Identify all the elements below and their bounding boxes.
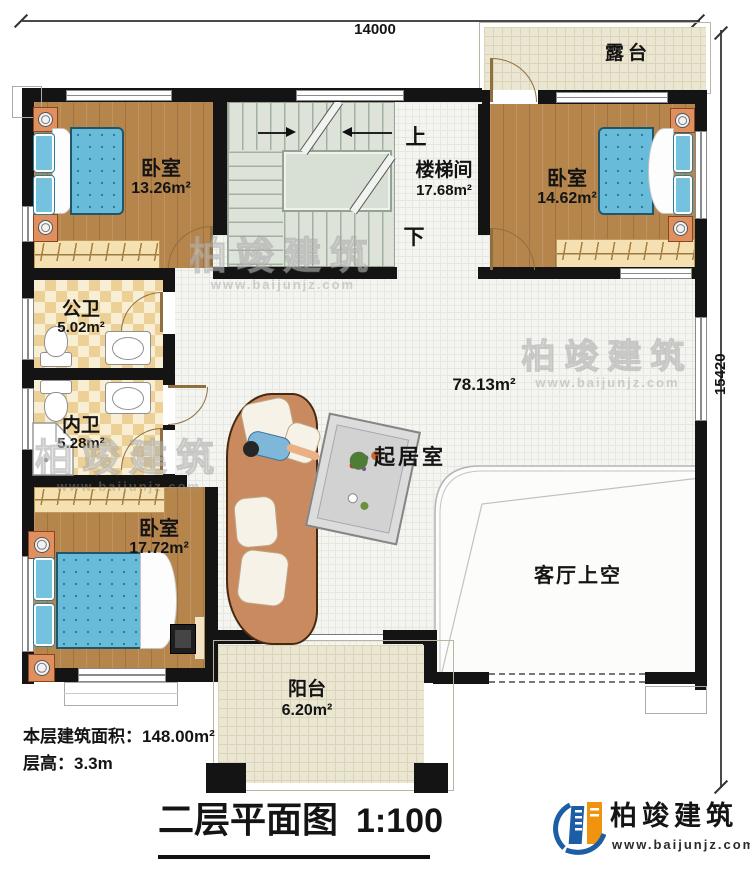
room-label-living-void: 客厅上空 <box>518 565 638 587</box>
company-logo: 柏竣建筑 www.baijunjz.com <box>548 796 738 862</box>
nightstand <box>28 531 55 559</box>
wardrobe <box>34 487 165 513</box>
window <box>556 92 668 103</box>
logo-website-text: www.baijunjz.com <box>612 838 750 852</box>
room-area-inner-bath: 5.28m² <box>49 436 113 453</box>
floor-area-note: 本层建筑面积：148.00m² <box>23 728 215 747</box>
room-label-bedroom-bl: 卧室 <box>128 518 190 540</box>
door-opening <box>163 430 175 474</box>
room-area-bedroom-tr: 14.62m² <box>527 190 607 208</box>
door-leaf <box>160 292 163 332</box>
floor-plan-page: 14000 15420 露台 客厅上空 <box>0 0 750 876</box>
door-leaf <box>160 428 163 470</box>
bed-sheet <box>648 128 674 214</box>
coffee-table-top <box>317 424 409 533</box>
bed <box>70 127 124 215</box>
lamp-icon <box>34 537 50 553</box>
window <box>78 668 166 682</box>
room-label-bedroom-tr: 卧室 <box>537 168 597 190</box>
wall <box>645 672 707 684</box>
lamp-icon <box>673 221 688 236</box>
stair-up-label: 上 <box>398 126 434 149</box>
wall <box>22 268 175 280</box>
railing <box>489 673 645 683</box>
window <box>66 90 172 101</box>
wall <box>22 475 187 487</box>
sofa-cushion <box>236 548 290 607</box>
pillow <box>674 176 692 214</box>
nightstand <box>668 216 693 242</box>
sofa-cushion <box>233 495 279 548</box>
room-label-stairwell: 楼梯间 <box>400 161 488 182</box>
top-dimension-label: 14000 <box>340 22 410 39</box>
bay-window-sill <box>64 682 178 706</box>
sink-icon <box>112 387 144 410</box>
floor-height-note: 层高：3.3m <box>23 755 113 774</box>
stair-arrow-icon <box>342 127 352 137</box>
window <box>695 317 707 421</box>
logo-brand-text: 柏竣建筑 <box>610 802 738 832</box>
title-underline <box>158 855 430 859</box>
sink-icon <box>112 337 144 360</box>
logo-mark-icon <box>548 796 606 858</box>
wall-step-outline <box>645 686 707 714</box>
tv-screen <box>175 630 191 648</box>
column <box>414 763 448 793</box>
door-opening <box>163 292 175 334</box>
room-label-living: 起居室 <box>350 446 470 469</box>
person-head <box>243 441 259 457</box>
wardrobe <box>556 239 695 268</box>
window <box>296 90 404 101</box>
nightstand <box>33 214 58 242</box>
door-leaf <box>490 228 493 270</box>
room-label-balcony: 阳台 <box>276 680 338 701</box>
plan-scale: 1:100 <box>356 803 443 840</box>
page-title: 二层平面图 <box>158 800 338 840</box>
bay-window-sill-line <box>64 693 178 694</box>
room-area-stairwell: 17.68m² <box>400 183 488 200</box>
pillow <box>34 134 54 172</box>
bed <box>56 552 142 649</box>
tv <box>170 624 196 654</box>
stair-arrow-icon <box>286 127 296 137</box>
right-dimension-label: 15420 <box>713 339 730 409</box>
lamp-icon <box>38 220 53 235</box>
room-label-terrace: 露台 <box>594 44 662 65</box>
title-block: 二层平面图 1:100 <box>158 800 438 840</box>
room-label-inner-bath: 内卫 <box>55 416 107 437</box>
room-label-bedroom-tl: 卧室 <box>131 158 191 180</box>
stairwell-side-flight <box>229 150 283 265</box>
room-area-bedroom-bl: 17.72m² <box>118 540 200 558</box>
room-area-bedroom-tl: 13.26m² <box>121 180 201 198</box>
wall <box>22 368 175 380</box>
window <box>620 268 692 279</box>
stair-direction-line <box>258 132 286 134</box>
door-leaf <box>490 58 493 102</box>
lamp-icon <box>675 113 690 128</box>
pillow <box>34 604 54 646</box>
nightstand <box>28 654 55 682</box>
room-area-public-bath: 5.02m² <box>49 320 113 337</box>
wall <box>213 267 397 279</box>
pillow <box>34 176 54 214</box>
stair-direction-line <box>352 132 392 134</box>
window <box>695 131 707 219</box>
room-area-living: 78.13m² <box>448 376 520 395</box>
pillow <box>674 134 692 172</box>
column <box>206 763 246 793</box>
room-label-public-bath: 公卫 <box>55 300 107 321</box>
room-area-balcony: 6.20m² <box>270 702 344 720</box>
lamp-icon <box>34 660 50 676</box>
lamp-icon <box>38 112 53 127</box>
door-leaf <box>168 385 206 388</box>
window <box>22 298 34 360</box>
stair-down-label: 下 <box>396 226 432 249</box>
door-leaf <box>210 226 213 268</box>
wardrobe <box>34 240 160 269</box>
wall <box>213 102 227 235</box>
pillow <box>34 558 54 600</box>
window <box>22 556 34 652</box>
